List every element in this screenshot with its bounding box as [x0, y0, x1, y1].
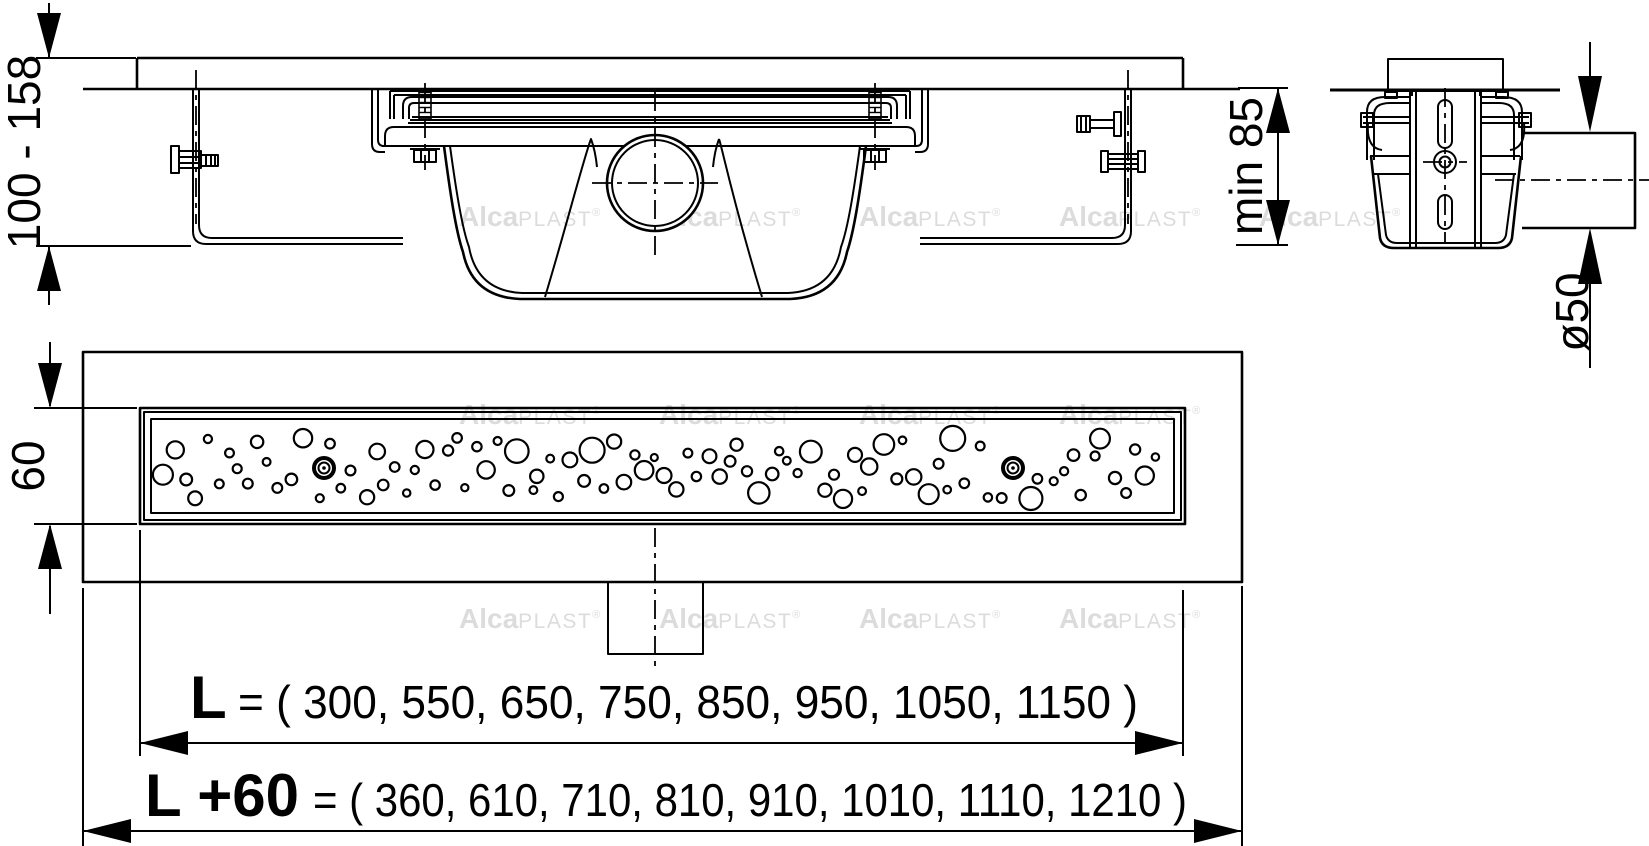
grate-hole: [703, 449, 717, 463]
length-L-label: L: [190, 664, 227, 731]
grate-hole: [818, 484, 831, 497]
dimensions-layer: 100 - 158 min 85 ø50 60 L = ( 300, 550, …: [0, 3, 1602, 846]
grate-hole: [861, 458, 877, 474]
watermark-logo: AlcaPLAST®: [1059, 201, 1200, 232]
grate-hole: [578, 475, 590, 487]
left-leg-bolt: [171, 146, 218, 173]
grate-hole: [630, 450, 639, 459]
grate-hole: [874, 434, 895, 455]
dome-tab-left: [1385, 92, 1397, 98]
grate-hole: [906, 469, 921, 484]
dim-min-depth: min 85: [1220, 88, 1290, 245]
grate-hole: [794, 469, 802, 477]
grate-hole: [1109, 472, 1121, 484]
grate-hole: [943, 486, 951, 494]
grate-hole: [530, 470, 543, 483]
grate-hole: [607, 435, 621, 449]
length-L60-values: = ( 360, 610, 710, 810, 910, 1010, 1110,…: [313, 774, 1187, 826]
grate-hole: [505, 439, 529, 463]
length-L60-label: L +60: [145, 762, 299, 829]
grate-hole: [188, 491, 202, 505]
grate-hole: [316, 494, 324, 502]
technical-drawing-page: AlcaPLAST®AlcaPLAST®AlcaPLAST®AlcaPLAST®…: [0, 0, 1649, 846]
grate-hole: [997, 493, 1007, 503]
grate-hole: [1050, 477, 1058, 485]
grate-hole: [243, 479, 253, 489]
grate-hole: [294, 429, 312, 447]
grate-hole: [600, 484, 609, 493]
grate-hole: [215, 480, 224, 489]
grate-width-label: 60: [2, 440, 54, 491]
grate-hole: [684, 449, 693, 458]
grate-hole: [546, 455, 554, 463]
min-depth-label: min 85: [1220, 97, 1272, 235]
watermark-logo: AlcaPLAST®: [1059, 399, 1200, 430]
grate-hole: [858, 487, 866, 495]
plan-grate-plate: [151, 419, 1174, 513]
grate-frame-section: [390, 91, 910, 119]
grate-hole: [580, 438, 605, 463]
dim-length-L: L = ( 300, 550, 650, 750, 850, 950, 1050…: [140, 530, 1183, 756]
grate-hole: [411, 466, 419, 474]
grate-hole: [325, 439, 335, 449]
grate-end-box: [1388, 59, 1503, 91]
grate-hole: [530, 486, 538, 494]
grate-hole: [657, 468, 672, 483]
grate-hole: [337, 484, 346, 493]
grate-hole: [378, 480, 389, 491]
grate-hole: [1152, 453, 1159, 460]
watermark-logo: AlcaPLAST®: [459, 201, 600, 232]
grate-hole: [651, 454, 658, 461]
grate-hole: [225, 449, 234, 458]
grate-hole: [1060, 467, 1068, 475]
length-L-values: = ( 300, 550, 650, 750, 850, 950, 1050, …: [238, 676, 1138, 728]
grate-hole: [984, 493, 992, 501]
grate-hole: [748, 482, 769, 503]
grate-hole: [635, 461, 654, 480]
right-leg-bolt-upper: [1077, 112, 1121, 136]
grate-hole: [416, 441, 433, 458]
grate-hole: [286, 474, 298, 486]
grate-hole: [472, 442, 481, 451]
dim-install-height: 100 - 158: [0, 3, 191, 305]
watermark-logo: AlcaPLAST®: [459, 399, 600, 430]
grate-hole: [263, 458, 271, 466]
grate-hole: [669, 482, 683, 496]
grate-hole: [360, 490, 374, 504]
watermark-logo: AlcaPLAST®: [859, 399, 1000, 430]
grate-hole: [725, 456, 736, 467]
grate-hole: [742, 466, 752, 476]
grate-hole: [494, 437, 502, 445]
grate-hole: [976, 442, 985, 451]
grate-hole: [477, 461, 494, 478]
grate-hole: [1090, 429, 1110, 449]
grate-hole: [940, 426, 965, 451]
grate-hole: [369, 444, 385, 460]
grate-hole: [829, 470, 839, 480]
grate-hole: [390, 462, 400, 472]
grate-hole: [1121, 488, 1131, 498]
right-leg-bolt-lower: [1101, 151, 1145, 172]
watermark-layer: AlcaPLAST®AlcaPLAST®AlcaPLAST®AlcaPLAST®…: [459, 201, 1400, 634]
grate-hole: [503, 485, 514, 496]
watermark-logo: AlcaPLAST®: [659, 603, 800, 634]
grate-hole: [1068, 449, 1080, 461]
grate-hole: [346, 466, 356, 476]
grate-hole: [617, 475, 632, 490]
grate-hole: [766, 468, 779, 481]
grate-hole: [167, 441, 184, 458]
grate-hole: [800, 441, 822, 463]
grate-hole: [233, 464, 242, 473]
grate-hole: [934, 459, 944, 469]
outlet-diameter-label: ø50: [1546, 272, 1598, 351]
grate-hole: [834, 490, 852, 508]
grate-hole: [1130, 444, 1140, 454]
grate-hole: [1091, 452, 1100, 461]
side-end-view: [1330, 59, 1649, 248]
grate-hole: [153, 465, 173, 485]
grate-hole: [452, 433, 462, 443]
grate-hole: [461, 484, 468, 491]
grate-hole: [730, 439, 742, 451]
flange-stack: [408, 117, 892, 123]
watermark-logo: AlcaPLAST®: [459, 603, 600, 634]
grate-hole: [443, 445, 453, 455]
grate-hole: [1136, 467, 1154, 485]
shower-drain-technical-drawing: AlcaPLAST®AlcaPLAST®AlcaPLAST®AlcaPLAST®…: [0, 0, 1649, 846]
grate-screw-left: [314, 458, 334, 478]
grate-hole: [204, 435, 212, 443]
grate-screw-right: [1003, 458, 1023, 478]
grate-hole: [554, 492, 563, 501]
floor-plate: [83, 58, 1240, 89]
grate-hole: [919, 484, 939, 504]
front-section-view: [83, 58, 1240, 299]
dome-tab-right: [1496, 92, 1508, 98]
grate-hole: [1019, 487, 1042, 510]
grate-hole: [960, 479, 970, 489]
grate-hole: [775, 447, 783, 455]
grate-hole: [899, 437, 907, 445]
grate-bar-section: [403, 97, 897, 119]
grate-hole: [783, 457, 791, 465]
grate-hole: [251, 436, 263, 448]
watermark-logo: AlcaPLAST®: [859, 201, 1000, 232]
grate-hole: [563, 453, 578, 468]
grate-hole: [272, 483, 282, 493]
grate-hole: [848, 448, 862, 462]
grate-hole: [1033, 474, 1043, 484]
grate-hole: [430, 480, 439, 489]
wall-clip-left: [372, 89, 385, 152]
wall-clip-right: [915, 89, 928, 152]
watermark-logo: AlcaPLAST®: [1059, 603, 1200, 634]
grate-hole: [1076, 490, 1086, 500]
watermark-logo: AlcaPLAST®: [859, 603, 1000, 634]
install-height-label: 100 - 158: [0, 55, 50, 249]
grate-hole: [403, 489, 410, 496]
grate-hole: [891, 473, 902, 484]
grate-hole: [180, 474, 192, 486]
plan-outer-flange: [83, 352, 1242, 582]
grate-hole: [713, 469, 727, 483]
dim-grate-width: 60: [2, 342, 137, 614]
watermark-logo: AlcaPLAST®: [659, 399, 800, 430]
grate-hole: [692, 472, 701, 481]
